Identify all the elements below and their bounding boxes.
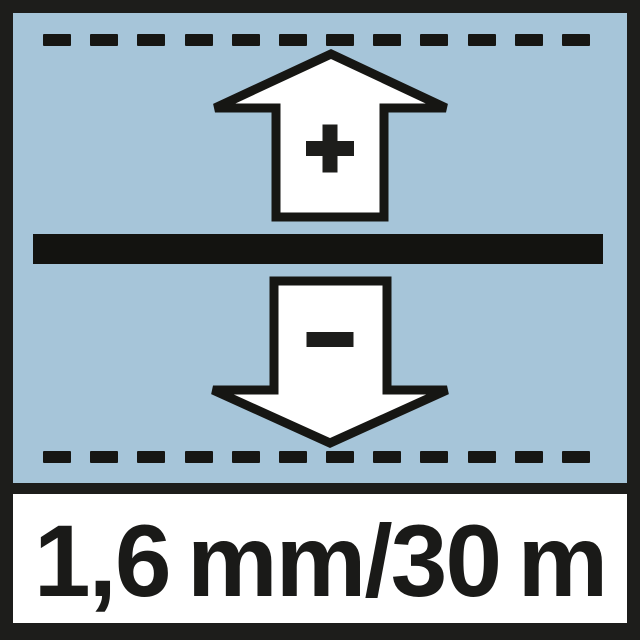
dash <box>43 451 71 463</box>
dashed-line-bottom <box>43 451 590 463</box>
dash <box>373 451 401 463</box>
tolerance-panel <box>13 13 627 483</box>
dash <box>90 451 118 463</box>
dash <box>137 451 165 463</box>
dash <box>562 451 590 463</box>
pictogram-frame: 1,6 mm/30 m <box>0 0 640 640</box>
dash <box>420 451 448 463</box>
accuracy-value: 1,6 mm/30 m <box>34 506 606 612</box>
dash <box>515 451 543 463</box>
dash <box>232 451 260 463</box>
dash <box>279 451 307 463</box>
minus-icon <box>307 332 354 347</box>
dash <box>185 451 213 463</box>
dash <box>326 451 354 463</box>
arrow-down-icon <box>213 281 447 443</box>
level-line <box>33 234 603 264</box>
accuracy-band: 1,6 mm/30 m <box>13 494 627 623</box>
dash <box>468 451 496 463</box>
